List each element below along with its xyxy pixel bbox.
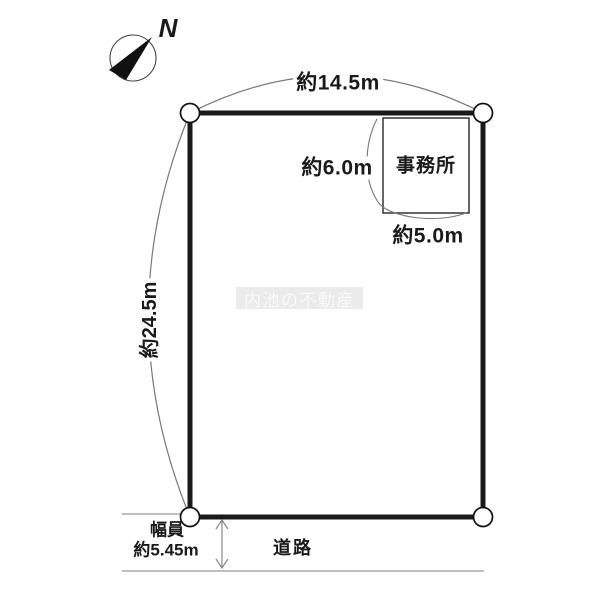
road-label: 道路: [273, 539, 313, 557]
office-depth-label: 約6.0m: [298, 157, 375, 180]
plot-depth-label: 約24.5m: [139, 279, 161, 362]
land-plot-diagram: N 約14.5m 約24.5m 約6.0m 事務所 約5.0m 幅員 約5.45…: [0, 0, 600, 600]
road-width-caption: 幅員: [150, 522, 184, 539]
road-width-value: 約5.45m: [133, 542, 198, 559]
north-label: N: [159, 15, 178, 41]
plot-width-label: 約14.5m: [293, 72, 383, 95]
north-compass-icon: [109, 35, 156, 81]
agency-watermark: 内池の不動産: [236, 287, 363, 309]
office-width-label: 約5.0m: [389, 225, 466, 248]
office-name-label: 事務所: [396, 157, 456, 176]
road-width-arrow: [216, 520, 228, 568]
